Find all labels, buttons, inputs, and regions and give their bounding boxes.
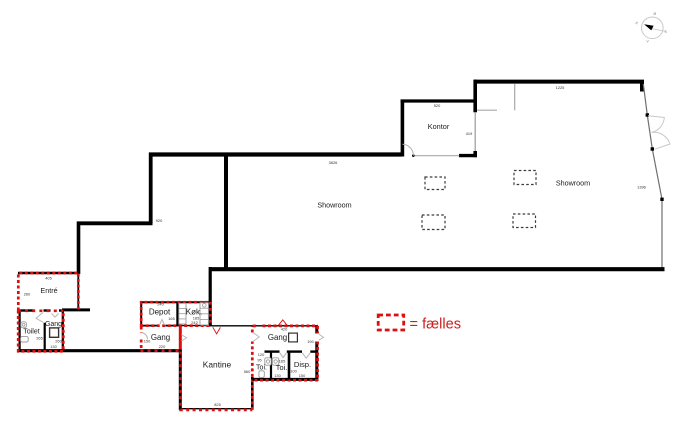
svg-text:260: 260 <box>24 292 31 297</box>
svg-text:Kantine: Kantine <box>203 359 232 369</box>
svg-text:Gang: Gang <box>151 333 170 342</box>
svg-text:825: 825 <box>214 402 221 407</box>
svg-text:Showroom: Showroom <box>317 201 351 210</box>
svg-text:242: 242 <box>191 320 198 325</box>
svg-text:Toi.: Toi. <box>256 364 267 371</box>
svg-text:120: 120 <box>258 352 265 357</box>
svg-text:Toi.: Toi. <box>276 363 288 372</box>
svg-text:240: 240 <box>157 302 164 307</box>
svg-text:100: 100 <box>290 369 297 374</box>
svg-text:Showroom: Showroom <box>556 179 590 188</box>
svg-text:95: 95 <box>257 358 261 363</box>
svg-text:419: 419 <box>466 131 473 136</box>
svg-text:920: 920 <box>156 218 163 223</box>
svg-text:130: 130 <box>50 344 57 349</box>
svg-text:165: 165 <box>279 359 286 364</box>
svg-text:Gang: Gang <box>268 333 287 342</box>
svg-text:Gang: Gang <box>45 321 62 328</box>
svg-text:220: 220 <box>159 344 166 349</box>
svg-text:165: 165 <box>168 316 175 321</box>
svg-text:560: 560 <box>244 369 251 374</box>
svg-text:190: 190 <box>307 339 314 344</box>
svg-text:Depot: Depot <box>149 307 171 316</box>
svg-text:130: 130 <box>274 373 281 378</box>
svg-text:520: 520 <box>434 103 441 108</box>
svg-text:150: 150 <box>144 338 151 343</box>
svg-text:Kontor: Kontor <box>428 122 450 131</box>
svg-text:= fælles: = fælles <box>410 316 462 332</box>
svg-text:420: 420 <box>281 327 288 332</box>
svg-text:1225: 1225 <box>556 85 565 90</box>
svg-text:Entré: Entré <box>40 286 57 295</box>
svg-text:405: 405 <box>45 275 52 280</box>
svg-text:150: 150 <box>299 373 306 378</box>
svg-text:3626: 3626 <box>329 160 338 165</box>
svg-text:Toilet: Toilet <box>23 328 39 335</box>
svg-text:1396: 1396 <box>637 185 646 190</box>
svg-text:265: 265 <box>36 335 43 340</box>
svg-text:Ø: Ø <box>654 12 657 16</box>
svg-text:260: 260 <box>55 338 62 343</box>
